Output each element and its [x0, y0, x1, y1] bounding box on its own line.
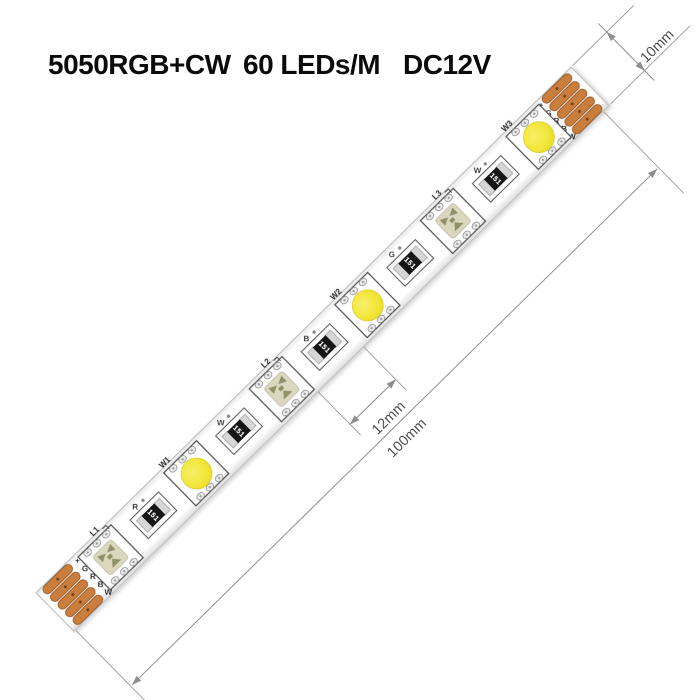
resistor-letter: W [217, 418, 225, 427]
title: 5050RGB+CW 60 LEDs/M DC12V [48, 49, 492, 80]
title-density: 60 LEDs/M [243, 49, 380, 80]
led-strip: + G R B W + G R B W [31, 62, 610, 633]
extension-line [364, 347, 407, 391]
resistor-letter: B [303, 334, 309, 343]
extension-line [604, 112, 684, 193]
title-chip-spec: 5050RGB+CW [48, 49, 232, 80]
led-strip-product-image: 5050RGB+CW 60 LEDs/M DC12V + G R B W [0, 0, 700, 700]
resistor-letter: G [389, 250, 395, 259]
dimension-label-10mm: 10mm [638, 27, 678, 67]
resistor-letter: W [474, 166, 482, 175]
title-voltage: DC12V [403, 49, 492, 80]
resistor-letter: R [132, 502, 138, 511]
extension-line [572, 5, 633, 65]
extension-line [76, 631, 156, 700]
dimension-section-length: 100mm [76, 112, 684, 700]
extension-line [318, 392, 361, 436]
arrow-overshoot [645, 71, 655, 81]
arrow-overshoot [598, 23, 606, 32]
diagram-canvas: 5050RGB+CW 60 LEDs/M DC12V + G R B W [0, 0, 700, 700]
dimension-arrow [607, 32, 645, 71]
